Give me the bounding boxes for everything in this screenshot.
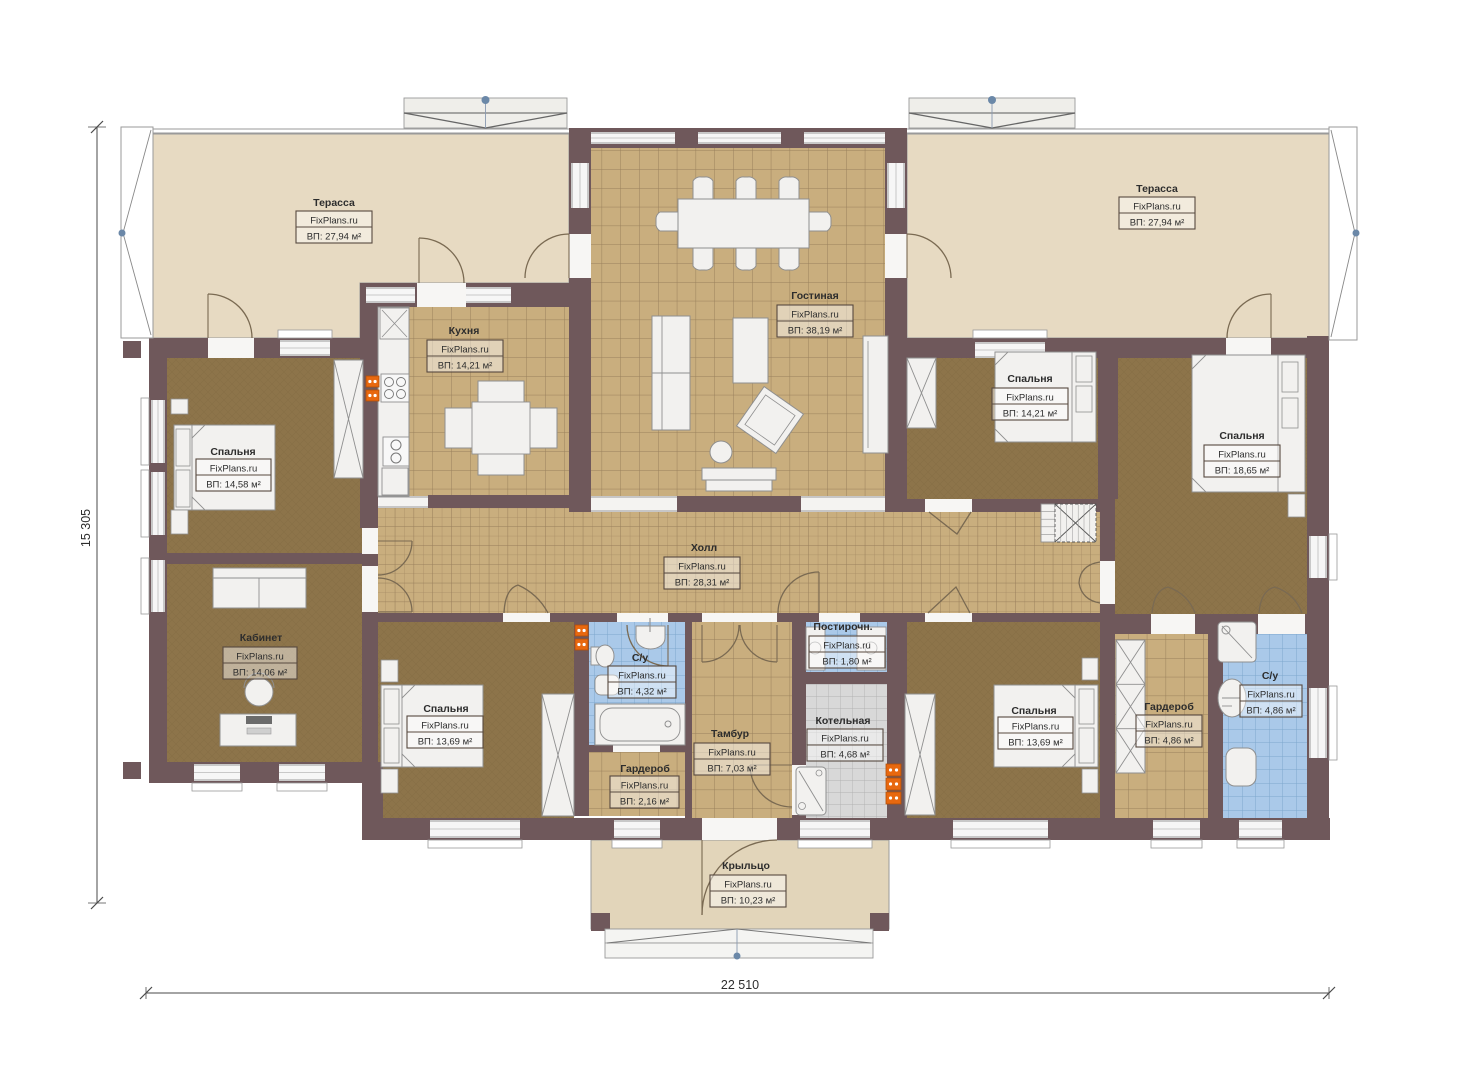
svg-text:Терасса: Терасса bbox=[1136, 183, 1178, 195]
svg-text:ВП: 18,65 м²: ВП: 18,65 м² bbox=[1215, 466, 1270, 477]
svg-text:ВП: 4,86 м²: ВП: 4,86 м² bbox=[1144, 736, 1193, 747]
svg-text:FixPlans.ru: FixPlans.ru bbox=[310, 216, 358, 227]
svg-text:Спальня: Спальня bbox=[210, 446, 255, 458]
svg-text:FixPlans.ru: FixPlans.ru bbox=[708, 748, 756, 759]
svg-text:С/у: С/у bbox=[1262, 670, 1279, 682]
svg-text:FixPlans.ru: FixPlans.ru bbox=[1247, 690, 1295, 701]
svg-text:ВП: 4,86 м²: ВП: 4,86 м² bbox=[1246, 706, 1295, 717]
svg-text:FixPlans.ru: FixPlans.ru bbox=[724, 880, 772, 891]
svg-text:Котельная: Котельная bbox=[816, 715, 871, 727]
svg-text:FixPlans.ru: FixPlans.ru bbox=[823, 641, 871, 652]
svg-text:FixPlans.ru: FixPlans.ru bbox=[791, 310, 839, 321]
svg-text:ВП: 4,32 м²: ВП: 4,32 м² bbox=[617, 687, 666, 698]
svg-text:Кабинет: Кабинет bbox=[240, 632, 283, 644]
svg-text:Гардероб: Гардероб bbox=[1144, 701, 1194, 713]
svg-text:ВП: 1,80 м²: ВП: 1,80 м² bbox=[822, 657, 871, 668]
svg-text:ВП: 7,03 м²: ВП: 7,03 м² bbox=[707, 764, 756, 775]
svg-text:FixPlans.ru: FixPlans.ru bbox=[621, 781, 669, 792]
svg-text:Гардероб: Гардероб bbox=[620, 763, 670, 775]
svg-text:Кухня: Кухня bbox=[449, 325, 480, 337]
svg-text:Постирочн.: Постирочн. bbox=[813, 621, 872, 633]
svg-text:Спальня: Спальня bbox=[423, 703, 468, 715]
svg-text:Спальня: Спальня bbox=[1011, 705, 1056, 717]
svg-text:FixPlans.ru: FixPlans.ru bbox=[441, 345, 489, 356]
svg-text:ВП: 27,94 м²: ВП: 27,94 м² bbox=[307, 232, 362, 243]
svg-text:15 305: 15 305 bbox=[79, 509, 93, 547]
svg-text:ВП: 28,31 м²: ВП: 28,31 м² bbox=[675, 578, 730, 589]
svg-text:С/у: С/у bbox=[632, 652, 649, 664]
svg-text:Холл: Холл bbox=[691, 542, 717, 554]
svg-text:ВП: 13,69 м²: ВП: 13,69 м² bbox=[418, 737, 473, 748]
svg-text:ВП: 4,68 м²: ВП: 4,68 м² bbox=[820, 750, 869, 761]
svg-text:Гостиная: Гостиная bbox=[791, 290, 838, 302]
svg-text:ВП: 14,06 м²: ВП: 14,06 м² bbox=[233, 668, 288, 679]
svg-text:FixPlans.ru: FixPlans.ru bbox=[678, 562, 726, 573]
svg-text:FixPlans.ru: FixPlans.ru bbox=[1012, 722, 1060, 733]
svg-text:FixPlans.ru: FixPlans.ru bbox=[1006, 393, 1054, 404]
svg-text:FixPlans.ru: FixPlans.ru bbox=[236, 652, 284, 663]
svg-text:ВП: 27,94 м²: ВП: 27,94 м² bbox=[1130, 218, 1185, 229]
svg-text:ВП: 2,16 м²: ВП: 2,16 м² bbox=[620, 797, 669, 808]
svg-text:ВП: 13,69 м²: ВП: 13,69 м² bbox=[1008, 738, 1063, 749]
svg-text:Крыльцо: Крыльцо bbox=[722, 860, 770, 872]
svg-text:FixPlans.ru: FixPlans.ru bbox=[821, 734, 869, 745]
svg-text:ВП: 14,21 м²: ВП: 14,21 м² bbox=[438, 361, 493, 372]
svg-text:Тамбур: Тамбур bbox=[711, 728, 749, 740]
svg-text:FixPlans.ru: FixPlans.ru bbox=[210, 464, 258, 475]
svg-text:FixPlans.ru: FixPlans.ru bbox=[1218, 450, 1266, 461]
svg-text:ВП: 14,58 м²: ВП: 14,58 м² bbox=[206, 480, 261, 491]
svg-text:ВП: 38,19 м²: ВП: 38,19 м² bbox=[788, 326, 843, 337]
svg-text:FixPlans.ru: FixPlans.ru bbox=[421, 721, 469, 732]
svg-text:FixPlans.ru: FixPlans.ru bbox=[1145, 720, 1193, 731]
svg-text:FixPlans.ru: FixPlans.ru bbox=[1133, 202, 1181, 213]
svg-text:22 510: 22 510 bbox=[721, 978, 759, 992]
svg-text:ВП: 10,23 м²: ВП: 10,23 м² bbox=[721, 896, 776, 907]
svg-text:ВП: 14,21 м²: ВП: 14,21 м² bbox=[1003, 409, 1058, 420]
svg-text:Спальня: Спальня bbox=[1219, 430, 1264, 442]
svg-text:Терасса: Терасса bbox=[313, 197, 355, 209]
svg-text:FixPlans.ru: FixPlans.ru bbox=[618, 671, 666, 682]
svg-text:Спальня: Спальня bbox=[1007, 373, 1052, 385]
